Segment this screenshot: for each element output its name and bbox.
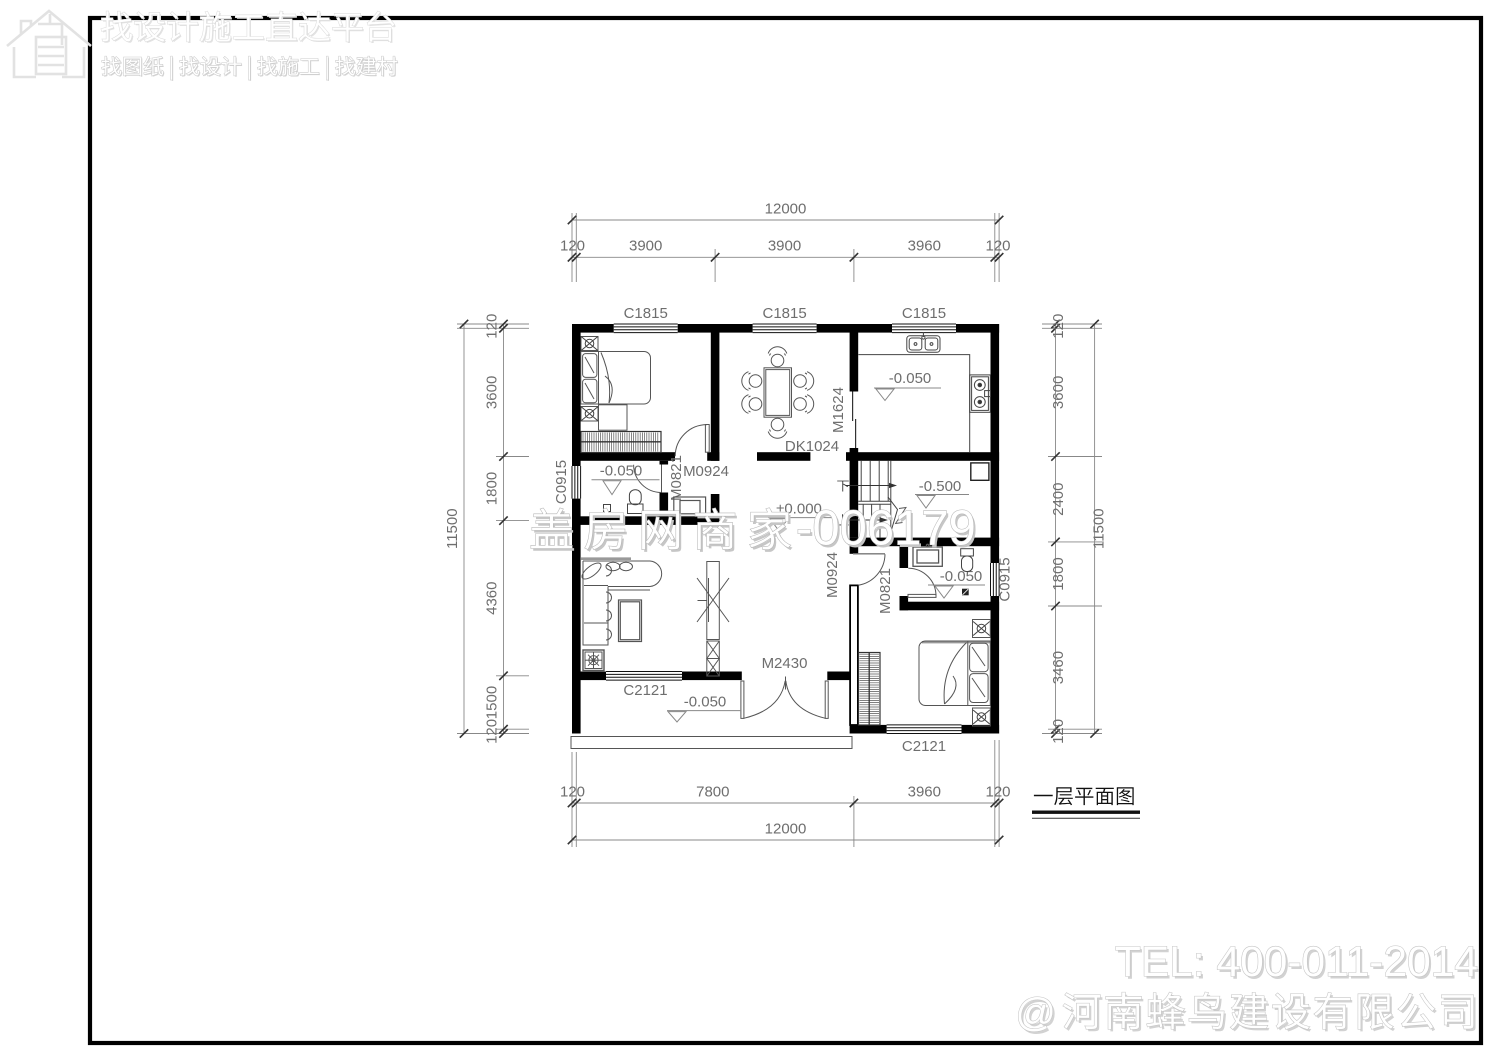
svg-text:120: 120 (1050, 314, 1067, 339)
svg-text:C1815: C1815 (624, 305, 668, 322)
svg-text:3600: 3600 (1050, 376, 1067, 409)
svg-text:3460: 3460 (1050, 651, 1067, 684)
svg-text:11500: 11500 (444, 508, 461, 549)
svg-text:@: @ (1015, 991, 1056, 1035)
svg-text:3900: 3900 (768, 238, 801, 255)
svg-text:120: 120 (1050, 719, 1067, 744)
svg-text:C1815: C1815 (902, 305, 946, 322)
svg-text:2400: 2400 (1050, 483, 1067, 516)
svg-text:M0821: M0821 (668, 455, 685, 501)
svg-text:12000: 12000 (765, 821, 807, 838)
svg-text:C0915: C0915 (553, 460, 570, 504)
svg-text:1800: 1800 (484, 472, 501, 505)
svg-text:M0924: M0924 (824, 552, 841, 598)
svg-text:M0924: M0924 (683, 463, 729, 480)
svg-text:120: 120 (985, 784, 1010, 801)
svg-text:DK1024: DK1024 (785, 438, 839, 455)
svg-text:7800: 7800 (696, 784, 729, 801)
svg-text:120: 120 (985, 238, 1010, 255)
svg-text:12000: 12000 (765, 201, 807, 218)
svg-text:3600: 3600 (484, 376, 501, 409)
svg-text:C2121: C2121 (902, 738, 946, 755)
svg-text:120: 120 (560, 238, 585, 255)
svg-text:4360: 4360 (484, 582, 501, 615)
svg-text:C2121: C2121 (623, 682, 667, 699)
svg-text:3900: 3900 (629, 238, 662, 255)
svg-text:-0.050: -0.050 (684, 694, 727, 711)
svg-text:-0.050: -0.050 (600, 463, 643, 480)
svg-text:120: 120 (484, 314, 501, 339)
svg-text:-0.050: -0.050 (889, 370, 932, 387)
svg-text:3960: 3960 (908, 784, 941, 801)
svg-text:-0.500: -0.500 (919, 478, 962, 495)
svg-text:M1624: M1624 (830, 387, 847, 433)
svg-text:-0.050: -0.050 (940, 568, 983, 585)
svg-text:C0915: C0915 (997, 557, 1014, 601)
svg-text:C1815: C1815 (762, 305, 806, 322)
svg-text:M2430: M2430 (762, 655, 808, 672)
svg-text:120: 120 (560, 784, 585, 801)
svg-text:M0821: M0821 (877, 568, 894, 614)
svg-text:3960: 3960 (908, 238, 941, 255)
svg-text:TEL: 400-011-2014: TEL: 400-011-2014 (1115, 939, 1478, 986)
svg-text:1500: 1500 (484, 686, 501, 719)
svg-text:11500: 11500 (1091, 508, 1108, 549)
svg-text:1800: 1800 (1050, 557, 1067, 590)
svg-text:-006179: -006179 (796, 502, 976, 556)
svg-text:120: 120 (484, 719, 501, 744)
